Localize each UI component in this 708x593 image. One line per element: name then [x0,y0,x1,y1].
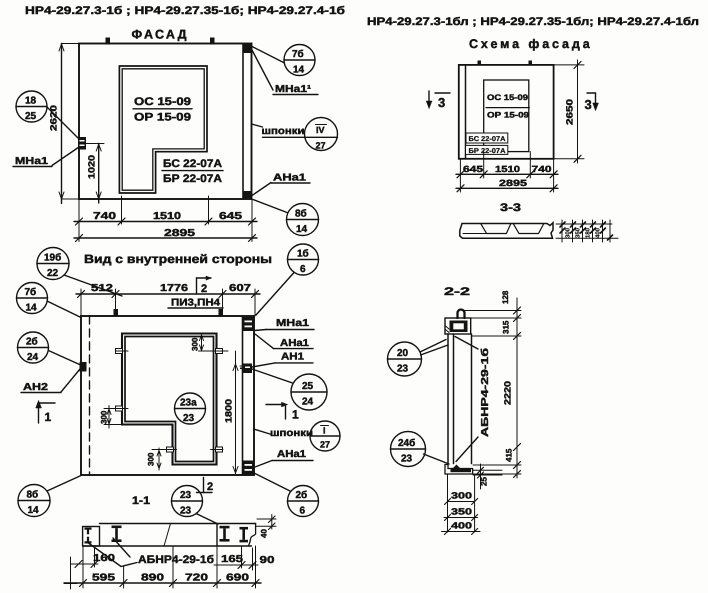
svg-text:ОР 15-09: ОР 15-09 [487,111,530,120]
svg-text:1510: 1510 [153,211,182,222]
svg-text:300: 300 [565,227,572,238]
svg-text:МНа1: МНа1 [276,318,310,329]
svg-text:ПИ3,ПН4: ПИ3,ПН4 [171,298,221,309]
svg-text:20: 20 [397,348,409,359]
svg-text:14: 14 [28,505,40,516]
svg-text:23а: 23а [180,398,197,409]
svg-text:300: 300 [147,452,156,466]
svg-text:ОР 15-09: ОР 15-09 [134,112,191,124]
svg-text:2-2: 2-2 [444,286,470,298]
svg-text:2650: 2650 [565,99,575,125]
svg-text:8б: 8б [295,209,307,220]
svg-text:IV: IV [316,125,325,135]
svg-text:165: 165 [221,554,244,565]
svg-text:24: 24 [27,352,39,363]
svg-text:415: 415 [505,448,514,462]
svg-text:2895: 2895 [499,178,527,188]
svg-text:БС 22-07А: БС 22-07А [469,136,506,143]
svg-text:1776: 1776 [160,283,189,294]
svg-text:2: 2 [201,283,207,295]
svg-text:720: 720 [185,573,209,584]
svg-text:2: 2 [207,481,213,493]
svg-text:350: 350 [451,507,472,517]
svg-text:2220: 2220 [503,381,513,405]
svg-text:БР 22-07А: БР 22-07А [163,173,222,185]
svg-text:160: 160 [93,553,116,564]
svg-text:27: 27 [320,440,330,450]
svg-text:МНа1¹: МНа1¹ [275,84,312,95]
svg-text:1: 1 [292,408,299,422]
svg-text:740: 740 [532,164,552,174]
svg-text:БС 22-07А: БС 22-07А [163,158,222,170]
svg-text:ФАСАД: ФАСАД [132,28,189,42]
svg-text:6: 6 [300,264,306,275]
svg-text:АНа1: АНа1 [273,173,307,184]
svg-text:НР4-29.27.3-1бл ; НР4-29.27.3: НР4-29.27.3-1бл ; НР4-29.27.35-1бл; НР4-… [367,16,699,28]
svg-text:3-3: 3-3 [500,202,521,214]
svg-text:8б: 8б [27,490,39,501]
svg-text:Схема фасада: Схема фасада [469,37,593,51]
svg-text:24: 24 [302,397,314,408]
svg-text:23: 23 [180,506,192,517]
svg-text:740: 740 [93,211,117,222]
svg-text:ОС 15-09: ОС 15-09 [487,93,529,102]
svg-text:Вид с внутренней стороны: Вид с внутренней стороны [84,252,272,266]
svg-text:2620: 2620 [49,105,59,131]
svg-text:645: 645 [219,211,243,222]
svg-text:607: 607 [229,283,252,294]
svg-text:АН2: АН2 [23,382,49,393]
svg-text:АНа1: АНа1 [280,338,309,349]
svg-text:25: 25 [25,111,37,122]
svg-text:I: I [323,426,326,436]
svg-text:7б: 7б [25,287,37,298]
svg-text:БР 22-07А: БР 22-07А [469,148,506,155]
svg-text:18: 18 [25,96,37,107]
svg-text:6: 6 [300,506,306,517]
svg-text:23: 23 [180,490,192,501]
svg-text:14: 14 [293,65,305,76]
svg-text:23: 23 [401,454,413,465]
svg-text:90: 90 [260,555,276,566]
svg-text:1020: 1020 [87,155,97,179]
svg-text:шпонки: шпонки [270,428,313,439]
svg-text:ОС 15-09: ОС 15-09 [134,96,191,108]
svg-text:2б: 2б [296,490,308,501]
svg-text:25: 25 [302,381,314,392]
svg-text:1-1: 1-1 [132,495,150,507]
svg-text:300: 300 [100,410,109,424]
svg-text:АБНР4-29-1б: АБНР4-29-1б [138,554,214,566]
svg-text:350: 350 [575,227,582,238]
svg-text:АНа1: АНа1 [277,449,306,460]
svg-text:2895: 2895 [164,228,196,239]
svg-text:40: 40 [260,529,269,538]
svg-text:300: 300 [451,491,472,501]
svg-text:27: 27 [316,141,326,151]
svg-text:3: 3 [438,95,445,110]
svg-text:25: 25 [480,477,489,486]
svg-text:595: 595 [92,573,116,584]
svg-text:23: 23 [397,364,409,375]
svg-text:1: 1 [45,410,52,424]
svg-text:890: 890 [141,573,165,584]
svg-text:7б: 7б [292,49,304,60]
svg-text:1б: 1б [297,249,309,260]
svg-text:19б: 19б [44,253,61,264]
svg-text:14: 14 [26,303,38,314]
svg-text:НР4-29.27.3-1б ; НР4-29.27.35: НР4-29.27.3-1б ; НР4-29.27.35-1б; НР4-29… [25,5,345,17]
svg-text:14: 14 [296,224,308,235]
svg-text:3: 3 [585,97,592,112]
svg-text:400: 400 [451,521,472,531]
svg-text:МНа1: МНа1 [15,156,49,167]
svg-text:128: 128 [501,290,510,304]
svg-text:шпонки: шпонки [262,126,305,137]
svg-text:645: 645 [463,164,483,174]
svg-text:1800: 1800 [224,399,234,423]
svg-text:2б: 2б [26,337,38,348]
svg-text:315: 315 [502,320,511,334]
svg-text:22: 22 [47,268,59,279]
svg-text:180: 180 [585,227,592,238]
svg-text:АН1: АН1 [281,352,304,363]
svg-text:24б: 24б [398,438,415,449]
svg-text:23: 23 [183,413,195,424]
svg-text:300: 300 [191,337,200,351]
svg-text:690: 690 [226,573,250,584]
svg-text:АБНР4-29-1б: АБНР4-29-1б [480,348,491,437]
svg-text:1510: 1510 [495,164,520,174]
svg-text:400: 400 [595,227,602,238]
